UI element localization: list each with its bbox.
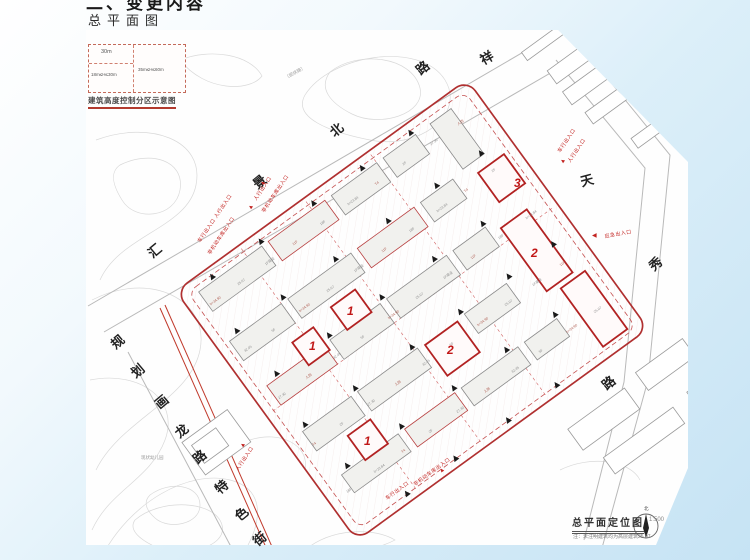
change-marker-number: 2: [447, 343, 454, 357]
drawing-note: 注：未注明建筑均为高层建筑25.07: [573, 533, 651, 540]
entrance-triangle-icon: ◀: [592, 233, 597, 239]
change-marker-number: 1: [364, 434, 371, 448]
legend-divider: [133, 45, 134, 92]
page-title: 总平面图: [88, 10, 164, 29]
height-control-legend: 30m 18m≤H≤30m 35m≤H≤60m: [88, 44, 186, 93]
street-annotation: 现状幼儿园: [141, 455, 164, 461]
drawing-title: 总平面定位图: [572, 514, 644, 534]
legend-cell-30m: 30m: [101, 49, 112, 55]
change-marker-number: 1: [309, 339, 316, 353]
change-marker-number: 2: [531, 246, 538, 260]
compass-north-label: 北: [644, 506, 649, 512]
site-plan-page: b=34.9025.071F商业11F18Fb=23.84T42F27.30人防…: [0, 0, 750, 560]
legend-divider: [89, 63, 133, 64]
drawing-scale: 1:500: [649, 517, 664, 523]
legend-cell-18-30m: 18m≤H≤30m: [91, 72, 117, 77]
legend-cell-35-60m: 35m≤H≤60m: [138, 67, 164, 72]
change-marker-number: 1: [347, 304, 354, 318]
legend-title: 建筑高度控制分区示意图: [88, 95, 176, 109]
change-marker-number: 3: [514, 176, 521, 190]
